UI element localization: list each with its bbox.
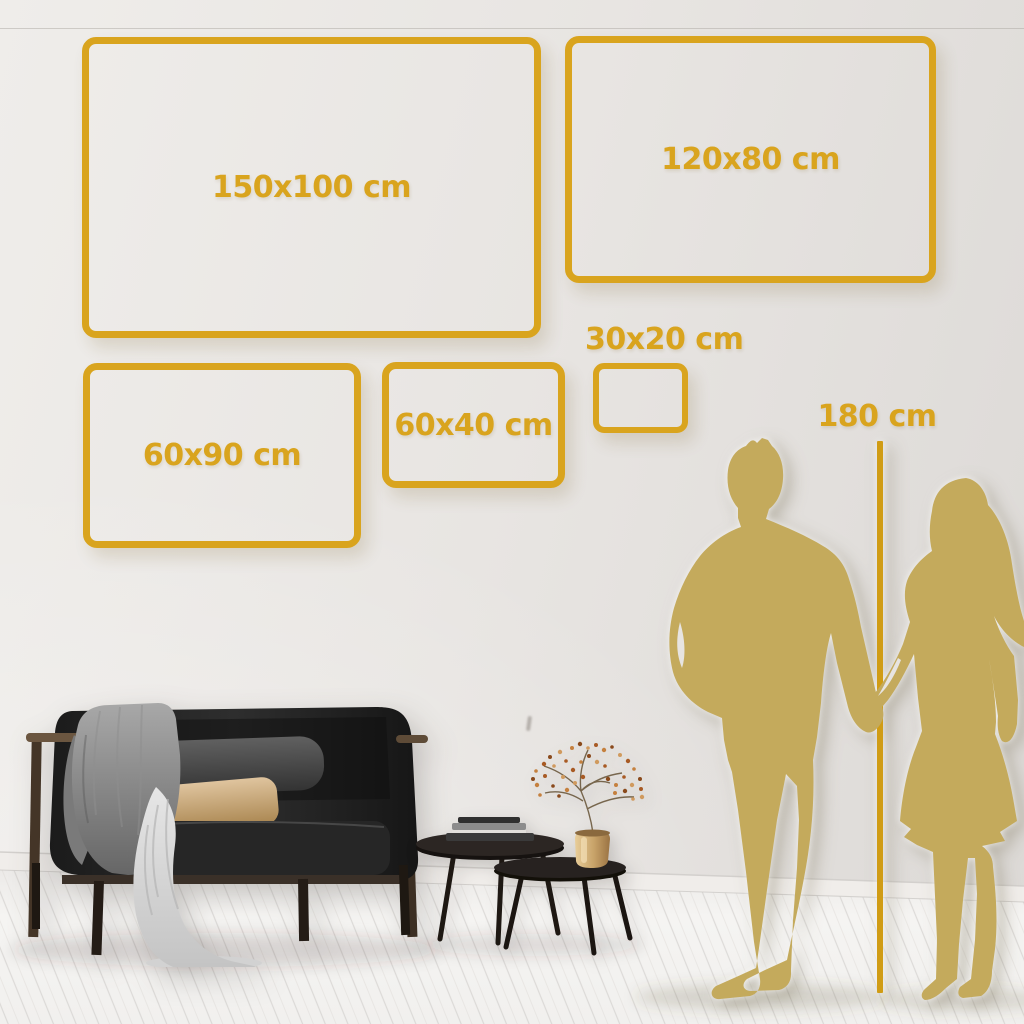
sofa-rail: [62, 875, 406, 884]
size-box-label: 150x100 cm: [212, 170, 411, 205]
size-box-label-30x20: 30x20 cm: [585, 322, 741, 357]
size-box-120x80: 120x80 cm: [565, 36, 936, 283]
man-silhouette: [669, 438, 883, 999]
size-box-label: 60x90 cm: [143, 438, 301, 473]
woman-silhouette: [863, 478, 1024, 1000]
coffee-table-illustration: [412, 733, 652, 968]
size-box-60x90: 60x90 cm: [83, 363, 361, 548]
size-box-label: 60x40 cm: [394, 408, 552, 443]
couple-silhouette-illustration: [640, 400, 1024, 1024]
size-box-150x100: 150x100 cm: [82, 37, 541, 338]
size-box-label: 120x80 cm: [661, 142, 840, 177]
plant-illustration: [531, 742, 644, 833]
book-stack: [446, 817, 534, 841]
sofa-illustration: [8, 695, 438, 967]
size-box-60x40: 60x40 cm: [382, 362, 565, 488]
size-guide-scene: 150x100 cm 120x80 cm 60x90 cm 60x40 cm 3…: [0, 0, 1024, 1024]
brass-vase: [575, 830, 610, 869]
small-table: [494, 857, 630, 953]
large-table: [416, 832, 564, 943]
